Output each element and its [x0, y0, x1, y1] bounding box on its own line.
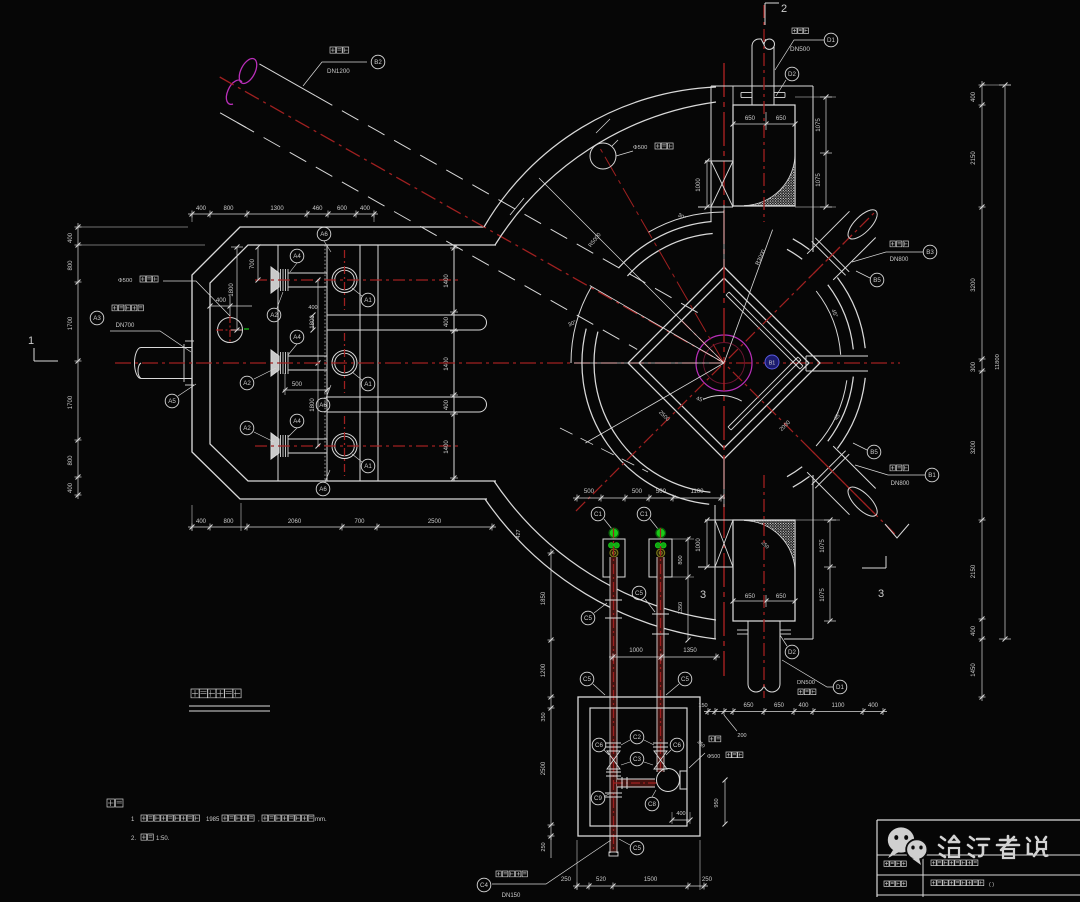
svg-text:250: 250 — [702, 876, 713, 883]
svg-text:1000: 1000 — [629, 647, 643, 654]
svg-text:1075: 1075 — [815, 118, 822, 132]
svg-text:1985: 1985 — [206, 817, 220, 823]
svg-text:A4: A4 — [293, 334, 301, 341]
svg-text:1: 1 — [28, 335, 34, 347]
svg-text:D1: D1 — [827, 37, 835, 44]
svg-text:400: 400 — [971, 91, 977, 102]
svg-text:1300: 1300 — [270, 206, 284, 212]
svg-text:C5: C5 — [584, 615, 592, 622]
svg-text:2500: 2500 — [428, 519, 442, 525]
svg-text:D1: D1 — [836, 684, 844, 691]
svg-text:1075: 1075 — [819, 588, 826, 602]
svg-text:460: 460 — [312, 206, 323, 212]
svg-text:A1: A1 — [364, 381, 372, 388]
svg-text:mm.: mm. — [315, 817, 327, 823]
svg-text:1200: 1200 — [541, 663, 547, 677]
svg-text:650: 650 — [776, 115, 787, 122]
svg-text:B1: B1 — [928, 472, 936, 479]
svg-text:2500: 2500 — [541, 761, 547, 775]
svg-text:B1: B1 — [769, 361, 776, 367]
svg-text:C6: C6 — [595, 742, 603, 749]
svg-text:DN500: DN500 — [797, 680, 815, 686]
svg-text:1400: 1400 — [443, 274, 450, 288]
svg-text:400: 400 — [443, 399, 450, 410]
svg-text:200: 200 — [737, 733, 746, 739]
svg-text:C1: C1 — [594, 511, 602, 518]
svg-text:C5: C5 — [633, 845, 641, 852]
svg-text:A4: A4 — [293, 253, 301, 260]
svg-text:400: 400 — [68, 482, 74, 493]
svg-text:1850: 1850 — [541, 591, 547, 605]
svg-text:DN800: DN800 — [890, 257, 909, 263]
svg-text:1400: 1400 — [443, 440, 450, 454]
svg-text:C5: C5 — [635, 590, 643, 597]
svg-text:DN700: DN700 — [116, 323, 135, 329]
svg-text:Φ500: Φ500 — [118, 278, 132, 284]
svg-text:C1: C1 — [640, 511, 648, 518]
svg-text:400: 400 — [971, 625, 977, 636]
svg-text:427: 427 — [516, 529, 522, 538]
svg-text:650: 650 — [745, 115, 756, 122]
svg-text:1400: 1400 — [443, 357, 450, 371]
svg-text:500: 500 — [292, 381, 303, 388]
svg-text:1:50.: 1:50. — [156, 836, 170, 842]
svg-text:3200: 3200 — [971, 278, 977, 292]
svg-text:150: 150 — [698, 703, 707, 709]
svg-text:A2: A2 — [243, 425, 251, 432]
svg-text:DN150: DN150 — [502, 893, 521, 897]
svg-text:A1: A1 — [364, 463, 372, 470]
svg-text:650: 650 — [774, 703, 785, 709]
svg-text:700: 700 — [249, 258, 256, 269]
svg-text:250: 250 — [561, 876, 572, 883]
svg-text:C5: C5 — [583, 676, 591, 683]
svg-text:800: 800 — [68, 260, 74, 271]
svg-text:A1: A1 — [364, 297, 372, 304]
svg-text:3: 3 — [878, 588, 884, 600]
svg-text:A3: A3 — [93, 315, 101, 322]
svg-text:( ): ( ) — [989, 882, 994, 888]
svg-text:400: 400 — [68, 232, 74, 243]
svg-text:1800: 1800 — [228, 283, 235, 297]
svg-text:400: 400 — [798, 703, 809, 709]
svg-text:C9: C9 — [594, 795, 602, 802]
svg-text:520: 520 — [596, 877, 607, 883]
svg-text:1000: 1000 — [695, 178, 702, 192]
svg-text:400: 400 — [676, 811, 685, 817]
svg-text:250: 250 — [541, 842, 547, 851]
svg-text:C5: C5 — [681, 676, 689, 683]
svg-text:Φ500: Φ500 — [707, 754, 720, 760]
svg-text:1100: 1100 — [690, 488, 704, 495]
svg-text:1700: 1700 — [68, 316, 74, 330]
svg-text:2.: 2. — [131, 836, 136, 842]
svg-text:3: 3 — [700, 589, 706, 601]
svg-text:D2: D2 — [788, 649, 796, 656]
svg-text:400: 400 — [216, 297, 227, 304]
svg-text:650: 650 — [743, 703, 754, 709]
svg-text:1500: 1500 — [644, 877, 658, 883]
svg-text:C2: C2 — [633, 734, 641, 741]
svg-text:300: 300 — [971, 361, 977, 372]
svg-text:800: 800 — [68, 455, 74, 466]
svg-text:1800: 1800 — [309, 398, 316, 412]
svg-text:1350: 1350 — [683, 647, 697, 654]
svg-text:400: 400 — [308, 305, 317, 311]
svg-text:1800: 1800 — [309, 315, 316, 329]
svg-text:650: 650 — [745, 593, 756, 600]
svg-text:2150: 2150 — [971, 564, 977, 578]
svg-text:1100: 1100 — [832, 703, 846, 709]
svg-text:B3: B3 — [926, 249, 934, 256]
svg-text:A2: A2 — [270, 312, 278, 319]
svg-text:1700: 1700 — [68, 395, 74, 409]
svg-text:3200: 3200 — [971, 440, 977, 454]
svg-text:C4: C4 — [480, 882, 488, 889]
svg-text:A6: A6 — [319, 402, 327, 409]
svg-text:400: 400 — [360, 206, 371, 212]
svg-text:A5: A5 — [168, 398, 176, 405]
svg-text:950: 950 — [714, 798, 720, 807]
svg-text:DN800: DN800 — [891, 481, 910, 487]
svg-text:800: 800 — [678, 555, 684, 564]
svg-text:800: 800 — [223, 519, 234, 525]
svg-text:1450: 1450 — [971, 663, 977, 677]
svg-text:A2: A2 — [243, 380, 251, 387]
svg-text:2150: 2150 — [971, 151, 977, 165]
svg-text:C3: C3 — [633, 756, 641, 763]
svg-text:500: 500 — [584, 488, 595, 495]
svg-text:1075: 1075 — [815, 173, 822, 187]
svg-text:2060: 2060 — [288, 519, 302, 525]
svg-text:2: 2 — [781, 3, 787, 15]
svg-text:600: 600 — [337, 206, 348, 212]
svg-text:1075: 1075 — [819, 539, 826, 553]
svg-text:B2: B2 — [374, 59, 382, 66]
svg-text:DN1200: DN1200 — [327, 68, 350, 75]
svg-text:B5: B5 — [870, 449, 878, 456]
svg-text:DN500: DN500 — [790, 46, 810, 53]
svg-text:400: 400 — [196, 519, 207, 525]
svg-text:400: 400 — [196, 206, 207, 212]
svg-text:500: 500 — [656, 488, 667, 495]
svg-text:700: 700 — [354, 519, 365, 525]
svg-text:C6: C6 — [673, 742, 681, 749]
svg-text:C8: C8 — [648, 801, 656, 808]
svg-text:D2: D2 — [788, 71, 796, 78]
svg-text:350: 350 — [541, 712, 547, 721]
svg-text:11800: 11800 — [995, 354, 1001, 370]
svg-text:1350: 1350 — [678, 602, 684, 614]
svg-text:400: 400 — [443, 316, 450, 327]
svg-text:800: 800 — [223, 206, 234, 212]
svg-text:A6: A6 — [319, 486, 327, 493]
svg-text:650: 650 — [776, 593, 787, 600]
svg-text:1000: 1000 — [695, 538, 702, 552]
svg-text:500: 500 — [632, 488, 643, 495]
svg-text:A6: A6 — [320, 231, 328, 238]
svg-text:B5: B5 — [873, 277, 881, 284]
svg-text:400: 400 — [868, 703, 879, 709]
svg-text:Φ500: Φ500 — [633, 145, 647, 151]
svg-text:A4: A4 — [293, 418, 301, 425]
